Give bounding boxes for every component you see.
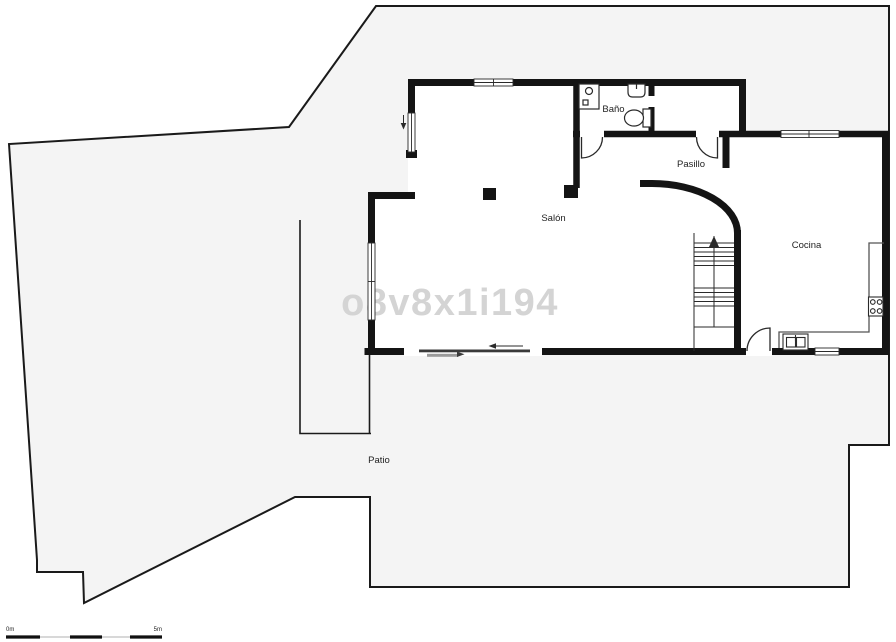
room-label-cocina: Cocina xyxy=(792,240,822,251)
scale-end-label: 5m xyxy=(154,627,162,633)
opening-door-cocina xyxy=(746,347,772,356)
window-kitchen-top xyxy=(781,131,839,138)
kitchen-sink-icon xyxy=(783,334,808,350)
stove-icon xyxy=(869,297,884,316)
scale-bar: 0m 5m xyxy=(6,627,162,637)
sink-icon xyxy=(579,84,599,109)
window-top-salon xyxy=(474,79,513,86)
toilet-icon xyxy=(625,109,652,127)
room-label-salon: Salón xyxy=(541,213,565,224)
scale-start-label: 0m xyxy=(6,627,14,633)
room-label-pasillo: Pasillo xyxy=(677,159,705,170)
room-label-bano: Baño xyxy=(602,104,624,115)
opening-door-salon xyxy=(580,130,604,138)
window-left-upper xyxy=(408,113,415,152)
pillar xyxy=(483,188,496,200)
sliding-panel-outer xyxy=(419,350,530,353)
opening-door-pasillo xyxy=(696,130,719,138)
washbasin-icon xyxy=(628,84,645,97)
sliding-panel-inner xyxy=(427,354,458,357)
window-left-lower xyxy=(368,243,375,320)
window-kitchen-bottom xyxy=(815,348,839,355)
wall-footing-bathroom xyxy=(564,185,578,198)
floor-plan: o8v8x1i194 xyxy=(0,0,896,642)
room-label-patio: Patio xyxy=(368,455,390,466)
floor-plan-page: o8v8x1i194 xyxy=(0,0,896,642)
